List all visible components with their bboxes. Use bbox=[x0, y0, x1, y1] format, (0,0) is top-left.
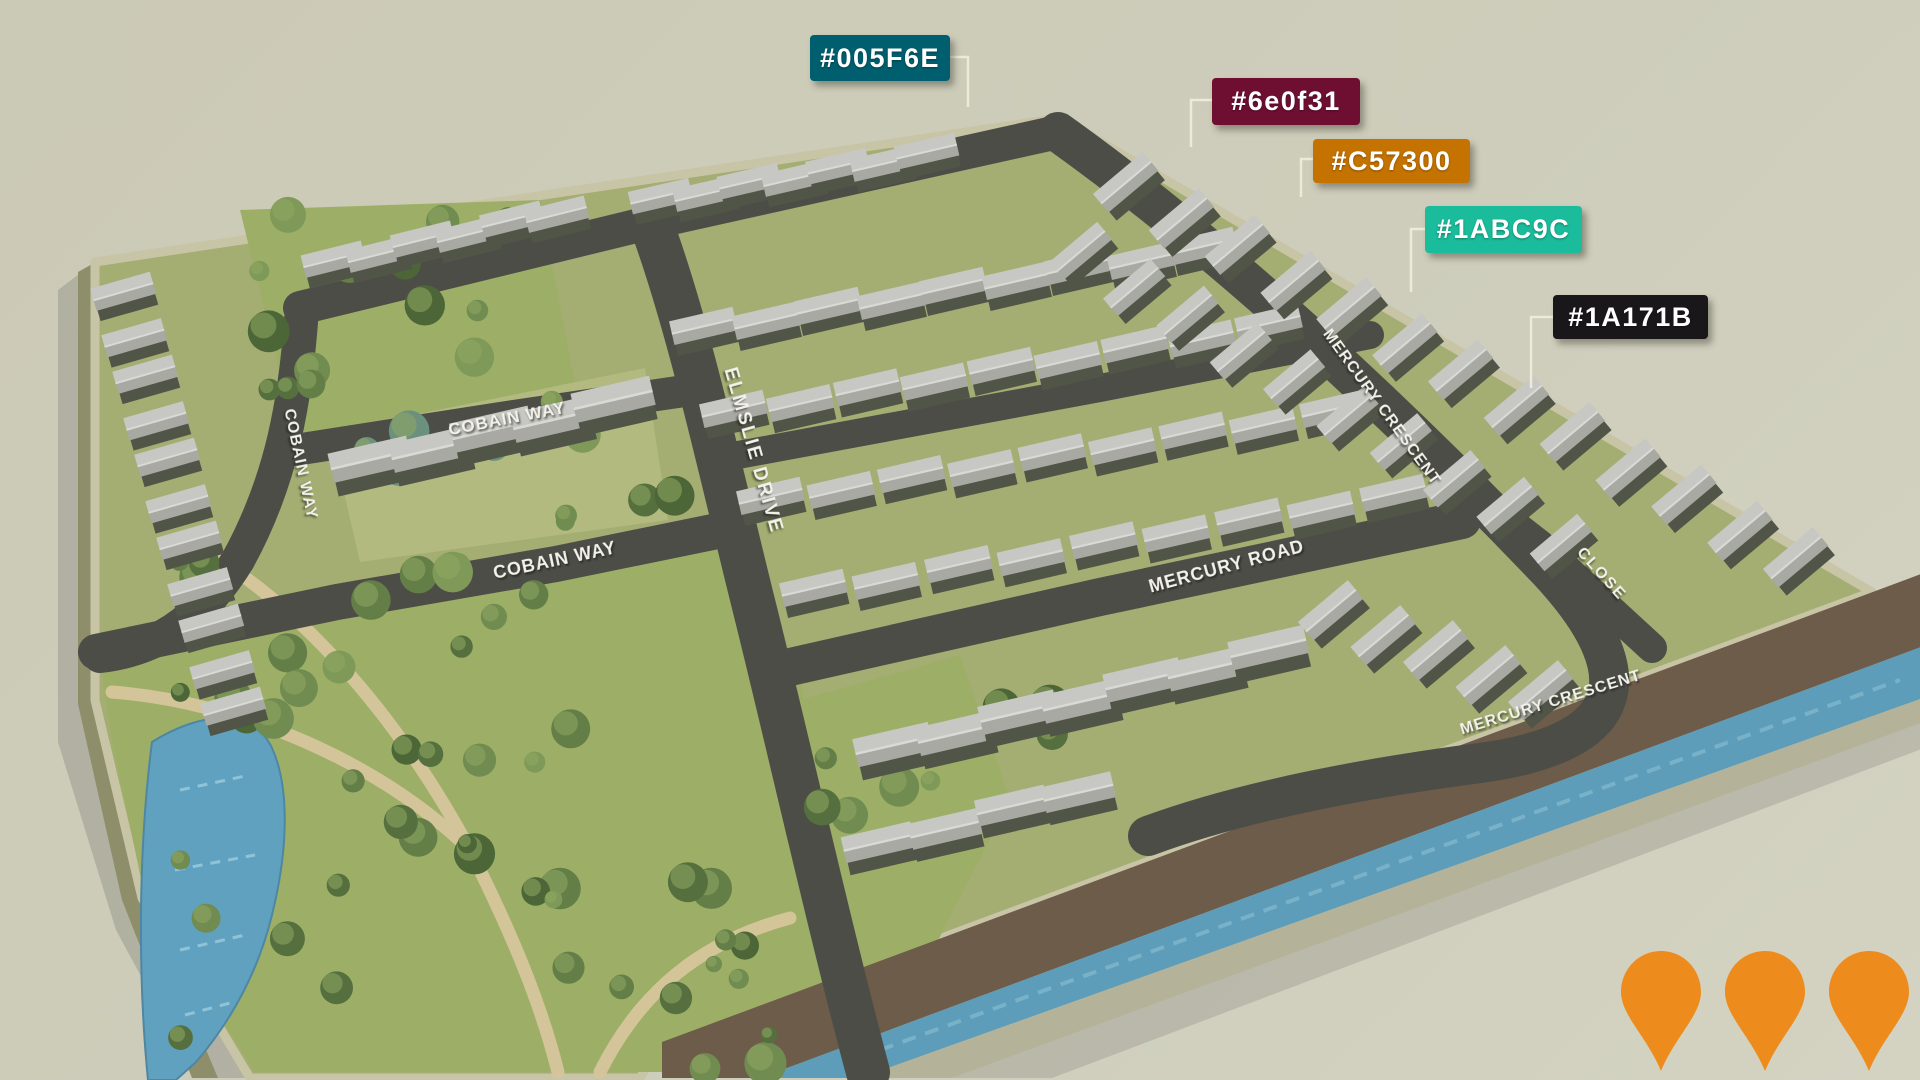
tree bbox=[405, 285, 445, 325]
map-pin-1[interactable] bbox=[1618, 948, 1704, 1074]
tree bbox=[609, 975, 634, 1000]
callout-line-6e0f31 bbox=[1191, 100, 1212, 147]
tree bbox=[248, 310, 290, 352]
tree bbox=[171, 683, 190, 702]
map-pin-shape[interactable] bbox=[1621, 951, 1701, 1071]
map-pin-row bbox=[1618, 948, 1912, 1074]
tree bbox=[552, 952, 584, 984]
tree bbox=[463, 744, 496, 777]
tree bbox=[481, 604, 507, 630]
tree bbox=[323, 651, 356, 684]
map-pin-shape[interactable] bbox=[1829, 951, 1909, 1071]
tree bbox=[519, 580, 548, 609]
tree bbox=[467, 300, 489, 322]
tree bbox=[555, 505, 577, 527]
tree bbox=[668, 862, 708, 902]
color-chip-005f6e: #005F6E bbox=[810, 35, 950, 81]
tree bbox=[458, 834, 477, 853]
color-chip-c57300: #C57300 bbox=[1313, 139, 1470, 183]
tree bbox=[249, 261, 269, 281]
tree bbox=[268, 633, 307, 672]
tree bbox=[171, 850, 190, 869]
map-pin-2[interactable] bbox=[1722, 948, 1808, 1074]
tree bbox=[192, 904, 221, 933]
callout-line-1abc9c bbox=[1411, 229, 1425, 292]
tree bbox=[400, 556, 438, 594]
tree bbox=[660, 982, 692, 1014]
tree bbox=[392, 735, 422, 765]
tree bbox=[804, 789, 841, 826]
tree bbox=[715, 929, 736, 950]
tree bbox=[384, 805, 418, 839]
tree bbox=[706, 956, 722, 972]
map-pin-shape[interactable] bbox=[1725, 951, 1805, 1071]
tree bbox=[551, 709, 590, 748]
tree bbox=[270, 197, 306, 233]
tree bbox=[921, 771, 941, 791]
masterplan-canvas: COBAIN WAY COBAIN WAY COBAIN WAY ELMSLIE… bbox=[0, 0, 1920, 1080]
tree bbox=[351, 580, 391, 620]
callout-line-c57300 bbox=[1301, 159, 1313, 197]
tree bbox=[455, 338, 494, 377]
color-chip-1a171b: #1A171B bbox=[1553, 295, 1708, 339]
tree bbox=[729, 969, 749, 989]
tree bbox=[524, 752, 545, 773]
masterplan-stage: COBAIN WAY COBAIN WAY COBAIN WAY ELMSLIE… bbox=[0, 0, 1920, 1080]
tree bbox=[418, 741, 444, 767]
color-chip-6e0f31: #6e0f31 bbox=[1212, 78, 1360, 125]
tree bbox=[815, 747, 837, 769]
tree bbox=[761, 1027, 778, 1044]
color-chip-1abc9c: #1ABC9C bbox=[1425, 206, 1582, 253]
tree bbox=[327, 874, 350, 897]
tree bbox=[432, 552, 473, 593]
tree bbox=[342, 769, 365, 792]
tree bbox=[270, 921, 305, 956]
tree bbox=[545, 891, 563, 909]
tree bbox=[655, 476, 695, 516]
callout-line-005f6e bbox=[950, 57, 968, 107]
tree bbox=[280, 669, 318, 707]
map-pin-3[interactable] bbox=[1826, 948, 1912, 1074]
tree bbox=[297, 370, 326, 399]
tree bbox=[168, 1025, 193, 1050]
tree bbox=[320, 971, 353, 1004]
tree bbox=[450, 635, 472, 657]
tree bbox=[277, 377, 300, 400]
